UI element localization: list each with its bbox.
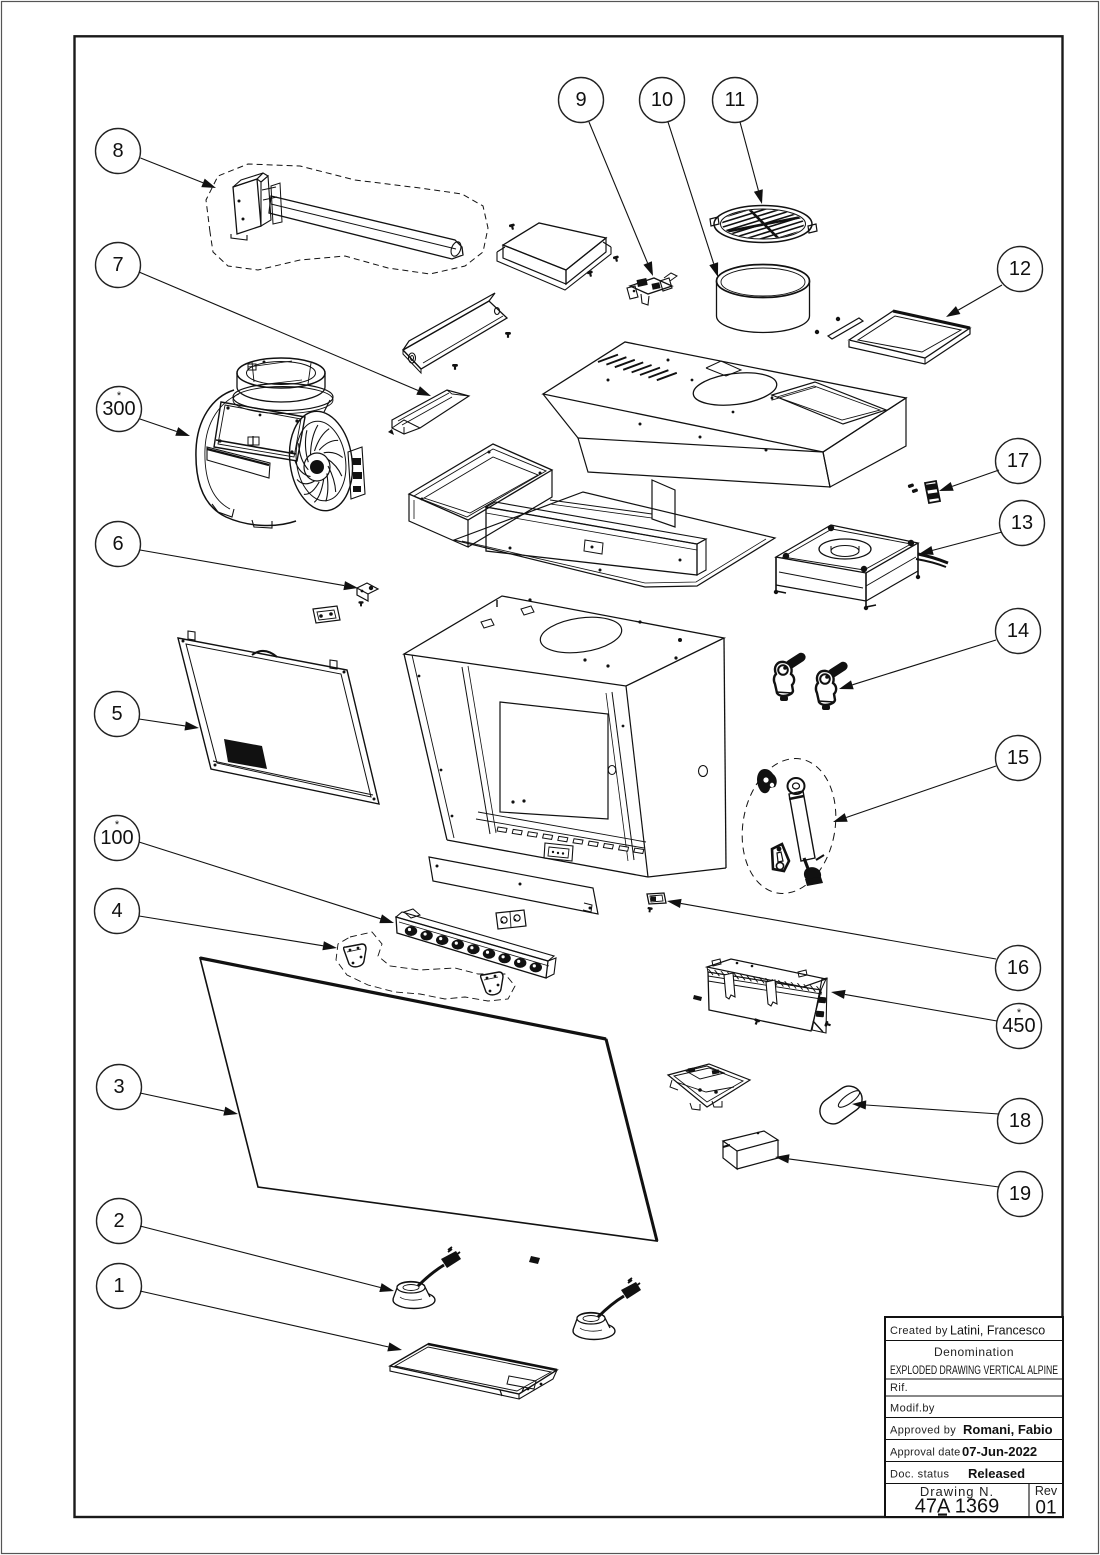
svg-text:17: 17 [1007,450,1029,472]
svg-text:Released: Released [968,1466,1025,1481]
svg-text:Doc. status: Doc. status [890,1469,950,1481]
svg-text:2: 2 [113,1210,124,1232]
svg-text:7: 7 [112,254,123,276]
svg-text:Rif.: Rif. [890,1382,908,1394]
svg-text:Modif.by: Modif.by [890,1403,935,1415]
svg-text:13: 13 [1011,512,1033,534]
svg-text:47A 1369: 47A 1369 [915,1496,1000,1518]
svg-text:12: 12 [1009,258,1031,280]
svg-text:15: 15 [1007,747,1029,769]
svg-text:Approval date: Approval date [890,1447,960,1459]
svg-text:*: * [115,819,120,831]
svg-text:*: * [1017,1007,1022,1019]
svg-text:4: 4 [111,900,122,922]
svg-text:3: 3 [113,1076,124,1098]
svg-text:19: 19 [1009,1183,1031,1205]
svg-text:Romani, Fabio: Romani, Fabio [963,1422,1053,1437]
svg-text:1: 1 [113,1275,124,1297]
svg-text:11: 11 [725,89,746,111]
svg-text:14: 14 [1007,620,1029,642]
svg-text:9: 9 [575,89,586,111]
svg-text:07-Jun-2022: 07-Jun-2022 [962,1444,1037,1459]
svg-text:16: 16 [1007,957,1029,979]
svg-text:01: 01 [1035,1498,1056,1519]
svg-text:Approved by: Approved by [890,1425,956,1437]
svg-text:*: * [117,390,122,402]
svg-text:Denomination: Denomination [934,1345,1014,1359]
svg-text:6: 6 [112,533,123,555]
svg-text:Created by: Created by [890,1325,948,1337]
svg-text:5: 5 [111,703,122,725]
svg-text:18: 18 [1009,1110,1031,1132]
svg-text:Rev: Rev [1035,1484,1058,1498]
svg-text:Latini, Francesco: Latini, Francesco [950,1324,1045,1338]
svg-text:10: 10 [651,89,673,111]
svg-text:8: 8 [112,140,123,162]
svg-text:EXPLODED DRAWING VERTICAL ALPI: EXPLODED DRAWING VERTICAL ALPINE [890,1365,1058,1377]
